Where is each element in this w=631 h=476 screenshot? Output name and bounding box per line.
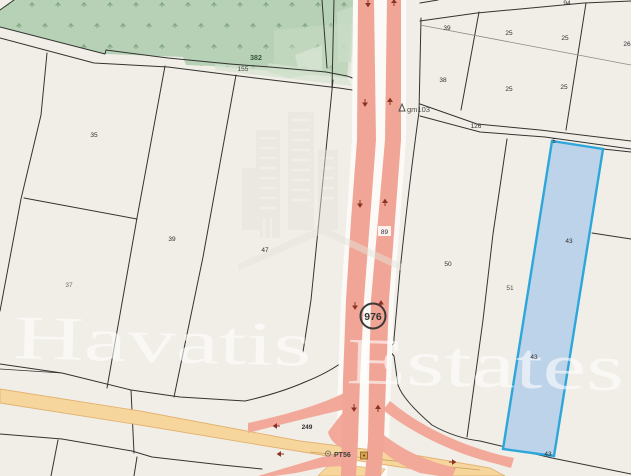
svg-text:gm103: gm103 [407, 105, 430, 114]
svg-text:382: 382 [250, 55, 262, 62]
svg-text:25: 25 [505, 30, 513, 37]
svg-text:43: 43 [544, 451, 552, 458]
svg-text:25: 25 [561, 35, 569, 42]
svg-text:976: 976 [364, 311, 382, 323]
svg-text:PT56: PT56 [334, 452, 351, 459]
svg-text:94: 94 [563, 0, 571, 7]
svg-text:Havatis: Havatis [13, 304, 313, 380]
svg-text:25: 25 [560, 84, 568, 91]
svg-text:35: 35 [90, 132, 98, 139]
svg-text:Estates: Estates [346, 325, 626, 405]
svg-text:47: 47 [261, 247, 269, 254]
svg-text:50: 50 [444, 261, 452, 268]
svg-text:26: 26 [623, 41, 631, 48]
svg-text:25: 25 [505, 86, 513, 93]
svg-text:43: 43 [565, 238, 573, 245]
svg-text:89: 89 [381, 229, 389, 236]
svg-text:39: 39 [168, 236, 176, 243]
svg-text:43: 43 [530, 354, 538, 361]
svg-text:38: 38 [439, 77, 447, 84]
svg-text:155: 155 [238, 66, 249, 73]
svg-text:249: 249 [302, 424, 313, 431]
svg-text:51: 51 [506, 285, 514, 292]
svg-text:126: 126 [471, 123, 482, 130]
svg-text:39: 39 [443, 25, 451, 32]
svg-text:37: 37 [65, 282, 73, 289]
